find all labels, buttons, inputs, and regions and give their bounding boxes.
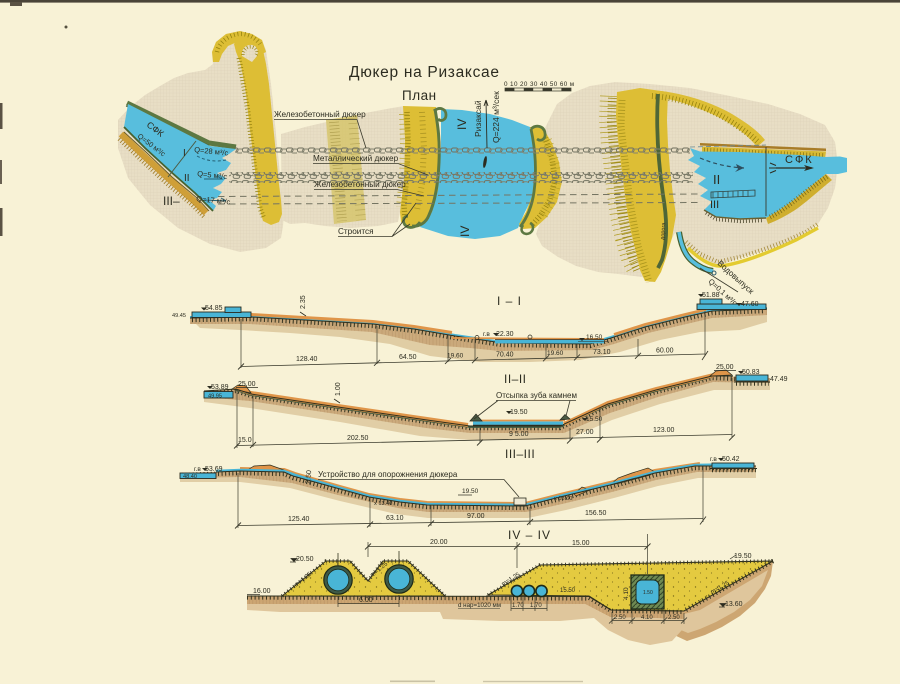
svg-text:156.50: 156.50: [585, 510, 607, 517]
svg-text:Железобетонный дюкер: Железобетонный дюкер: [314, 180, 406, 189]
svg-text:1.70: 1.70: [530, 603, 542, 609]
svg-text:19.50: 19.50: [734, 553, 752, 560]
svg-text:49.95: 49.95: [208, 394, 222, 400]
svg-text:54.85: 54.85: [205, 305, 223, 312]
svg-text:16.50: 16.50: [586, 334, 603, 341]
svg-text:47.60: 47.60: [741, 301, 759, 308]
svg-text:50.42: 50.42: [722, 456, 740, 463]
svg-text:2.50: 2.50: [614, 615, 626, 621]
svg-text:III–: III–: [163, 194, 180, 208]
svg-text:19.60: 19.60: [547, 350, 564, 357]
svg-text:19.50: 19.50: [510, 409, 528, 416]
svg-text:53.89: 53.89: [211, 384, 229, 391]
svg-text:СФК: СФК: [785, 154, 814, 166]
svg-text:II–II: II–II: [504, 372, 527, 386]
svg-text:Устройство для опорожнения дю: Устройство для опорожнения дюкера: [318, 470, 458, 479]
svg-text:г.в: г.в: [710, 456, 717, 463]
svg-text:63.10: 63.10: [386, 515, 404, 522]
svg-text:I: I: [183, 148, 186, 159]
svg-text:Q=224 м³/сек: Q=224 м³/сек: [491, 91, 501, 143]
svg-text:d нар=1020 мм: d нар=1020 мм: [458, 602, 501, 609]
svg-text:III: III: [710, 199, 719, 211]
svg-text:60.00: 60.00: [656, 348, 674, 355]
svg-text:97.00: 97.00: [467, 513, 485, 520]
svg-text:IV – IV: IV – IV: [508, 528, 551, 542]
svg-text:19.60: 19.60: [447, 353, 464, 360]
svg-text:15.50: 15.50: [560, 588, 576, 594]
svg-text:70.40: 70.40: [496, 352, 514, 359]
svg-text:1.50: 1.50: [643, 590, 653, 596]
svg-text:64.50: 64.50: [399, 354, 417, 361]
svg-text:128.40: 128.40: [296, 356, 318, 363]
svg-text:47.49: 47.49: [770, 376, 788, 383]
svg-text:22.30: 22.30: [496, 331, 514, 338]
svg-text:Железобетонный дюкер: Железобетонный дюкер: [274, 110, 366, 119]
svg-text:6.00: 6.00: [359, 597, 373, 604]
svg-text:IV: IV: [458, 226, 472, 237]
svg-text:49.45: 49.45: [172, 313, 186, 319]
svg-text:27.00: 27.00: [576, 429, 594, 436]
svg-text:0 10 20 30 40 50 60 м: 0 10 20 30 40 50 60 м: [504, 81, 575, 88]
svg-text:125.40: 125.40: [288, 516, 310, 523]
svg-text:г.в: г.в: [194, 466, 201, 473]
svg-text:20.50: 20.50: [296, 556, 314, 563]
svg-text:Металлический дюкер: Металлический дюкер: [313, 154, 399, 163]
svg-text:25.00: 25.00: [238, 381, 256, 388]
svg-text:Ризаксай: Ризаксай: [473, 100, 483, 137]
svg-text:План: План: [402, 88, 437, 103]
svg-text:15.00: 15.00: [572, 540, 590, 547]
svg-text:50.83: 50.83: [742, 369, 760, 376]
svg-text:г.в: г.в: [483, 331, 490, 338]
svg-text:x 13.40: x 13.40: [374, 501, 392, 507]
svg-text:15.0: 15.0: [238, 437, 252, 444]
svg-text:IV: IV: [455, 119, 469, 130]
svg-text:16.00: 16.00: [253, 588, 271, 595]
svg-text:1.00: 1.00: [335, 382, 342, 396]
svg-text:20.00: 20.00: [430, 539, 448, 546]
svg-text:51.88: 51.88: [702, 292, 720, 299]
svg-text:1.70: 1.70: [512, 603, 524, 609]
svg-text:I – I: I – I: [497, 294, 522, 308]
svg-text:73.10: 73.10: [593, 349, 611, 356]
svg-text:Отсыпка зуба камнем: Отсыпка зуба камнем: [496, 391, 577, 400]
svg-text:x 13.60: x 13.60: [554, 496, 572, 502]
svg-text:Строится: Строится: [338, 227, 374, 236]
svg-text:9 5.00: 9 5.00: [509, 431, 529, 438]
svg-text:53.69: 53.69: [205, 466, 223, 473]
svg-text:4.10: 4.10: [641, 615, 653, 621]
svg-text:48.40: 48.40: [183, 474, 197, 480]
svg-text:дорога: дорога: [660, 221, 667, 240]
svg-text:II: II: [184, 173, 190, 184]
svg-text:2.50: 2.50: [668, 615, 680, 621]
svg-text:4.10: 4.10: [623, 587, 630, 600]
svg-text:13.60: 13.60: [725, 601, 743, 608]
svg-text:25.00: 25.00: [716, 364, 734, 371]
svg-text:19.50: 19.50: [462, 488, 479, 495]
svg-text:2.35: 2.35: [300, 295, 307, 309]
svg-text:123.00: 123.00: [653, 427, 675, 434]
svg-text:202.50: 202.50: [347, 435, 369, 442]
svg-text:2.50: 2.50: [305, 470, 313, 484]
svg-text:II: II: [713, 172, 720, 187]
svg-text:III–III: III–III: [505, 447, 535, 461]
svg-text:Дюкер на Ризаксае: Дюкер на Ризаксае: [349, 64, 500, 81]
